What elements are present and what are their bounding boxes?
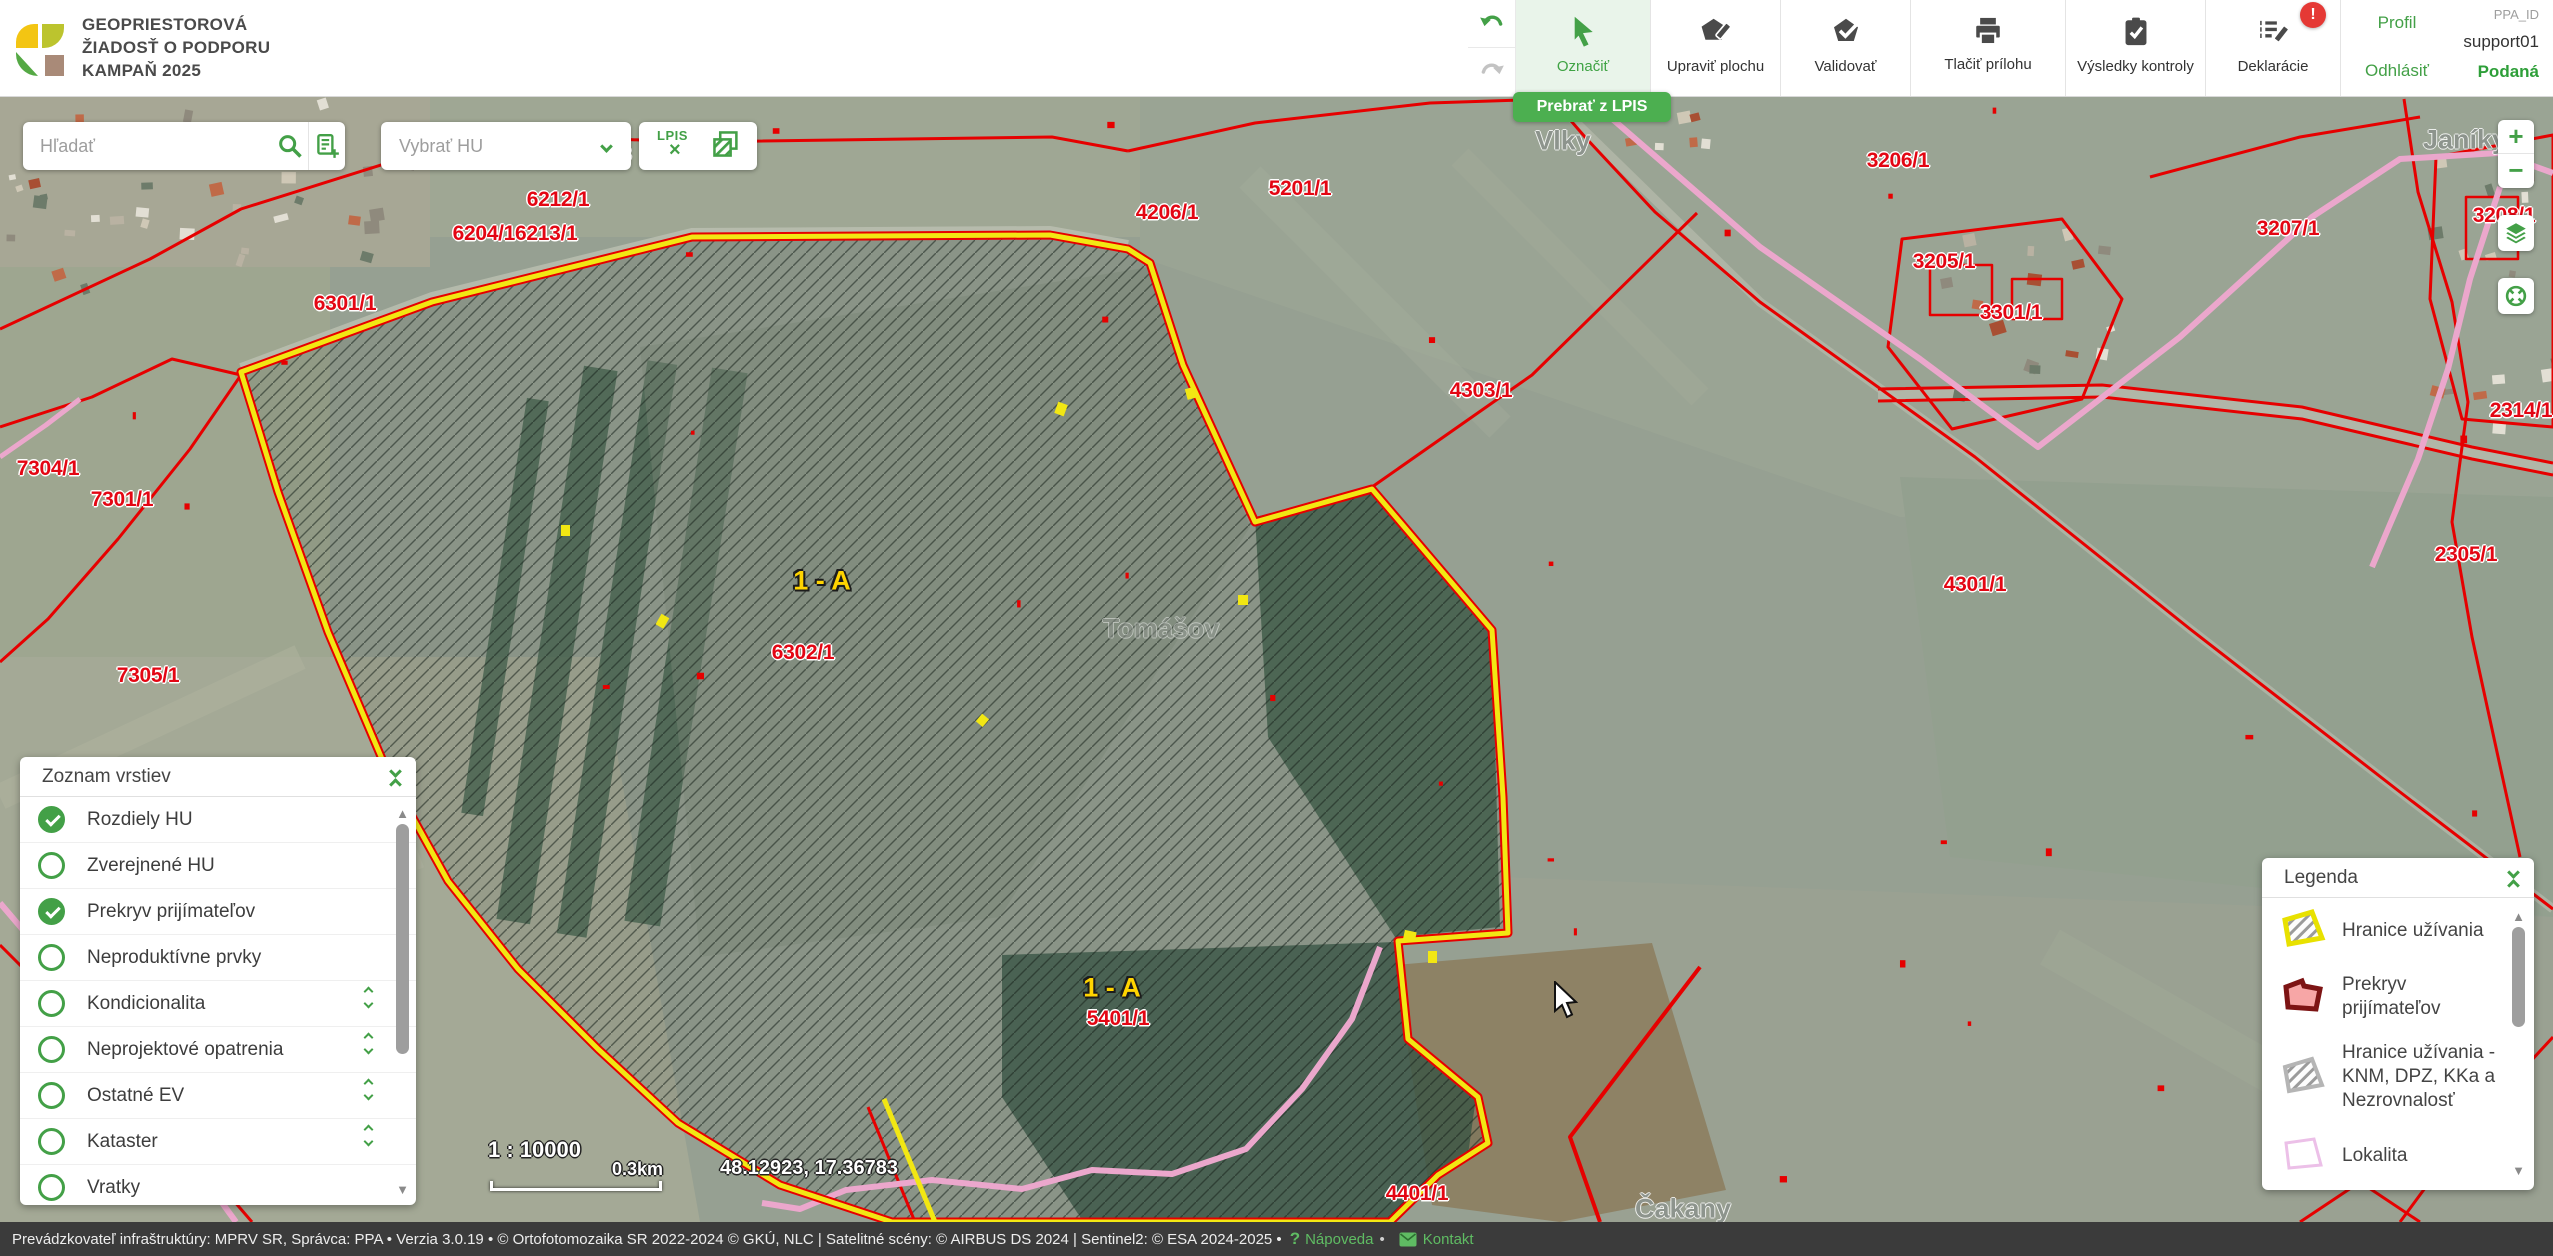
status-bar: Prevádzkovateľ infraštruktúry: MPRV SR, … [0, 1222, 2553, 1256]
infrastructure-text: Prevádzkovateľ infraštruktúry: MPRV SR, … [12, 1231, 1282, 1248]
layer-checked-icon[interactable] [38, 806, 65, 833]
legend-item: Hranice užívania [2262, 898, 2534, 963]
app-logo [16, 24, 64, 76]
declarations-list-icon [2255, 14, 2291, 50]
prebrat-z-lpis-tooltip: Prebrať z LPIS [1513, 92, 1671, 122]
edit-area-icon [1698, 14, 1734, 50]
legend-item: Lokalita [2262, 1123, 2534, 1188]
scale-ratio: 1 : 10000 [488, 1137, 581, 1163]
layer-item-label: Prekryv prijímateľov [87, 901, 255, 923]
legend-swatch-gray-hatch [2280, 1055, 2326, 1100]
legend-swatch-yellow-hatch [2280, 908, 2326, 953]
napoveda-link[interactable]: Nápoveda [1305, 1231, 1373, 1248]
scroll-up-arrow[interactable]: ▲ [395, 807, 410, 821]
layer-item-label: Ostatné EV [87, 1085, 184, 1107]
chevron-up-icon[interactable] [364, 1079, 374, 1089]
zoom-in-button[interactable]: + [2498, 120, 2534, 154]
layer-unchecked-icon[interactable] [38, 1174, 65, 1201]
layer-checked-icon[interactable] [38, 898, 65, 925]
toolbar-validovat-button[interactable]: Validovať [1780, 0, 1910, 96]
layers-panel: Zoznam vrstiev Rozdiely HUZverejnené HUP… [20, 757, 416, 1205]
toolbar-label: Validovať [1814, 58, 1876, 75]
chevron-up-icon [389, 778, 402, 791]
layer-item-label: Vratky [87, 1177, 140, 1199]
layer-item-rozdiely-hu[interactable]: Rozdiely HU [20, 797, 416, 843]
odhlasit-link[interactable]: Odhlásiť [2342, 61, 2452, 81]
x-icon: × [669, 139, 681, 162]
search-box [23, 122, 345, 170]
legend-swatch-pink-outline [2280, 1133, 2326, 1178]
layer-unchecked-icon[interactable] [38, 944, 65, 971]
chevron-up-icon[interactable] [364, 987, 374, 997]
toolbar-vysledky-kontroly-button[interactable]: Výsledky kontroly [2065, 0, 2205, 96]
layers-icon [2503, 220, 2529, 246]
status-badge: Podaná [2478, 62, 2539, 82]
lpis-remove-button[interactable]: LPIS × [655, 128, 695, 164]
layer-unchecked-icon[interactable] [38, 1082, 65, 1109]
collapse-panel-button[interactable] [391, 765, 400, 789]
legend-item: Prekryv prijímateľov [2262, 963, 2534, 1031]
add-to-list-button[interactable] [308, 122, 345, 170]
layers-button[interactable] [2498, 215, 2534, 251]
printer-icon [1971, 14, 2005, 48]
chevron-down-icon[interactable] [364, 1091, 374, 1101]
help-icon: ? [1290, 1229, 1300, 1249]
chevron-up-icon [2507, 879, 2520, 892]
layer-item-label: Zverejnené HU [87, 855, 215, 877]
chevron-up-icon[interactable] [364, 1125, 374, 1135]
scale-bar [490, 1181, 662, 1191]
layer-reorder-control[interactable] [365, 1080, 372, 1099]
legend-item-label: Hranice užívania - KNM, DPZ, KKa a Nezro… [2342, 1041, 2510, 1113]
chevron-down-icon[interactable] [364, 1045, 374, 1055]
zoom-out-button[interactable]: − [2498, 154, 2534, 188]
coordinates: 48.12923, 17.36783 [720, 1157, 898, 1180]
toolbar-label: Upraviť plochu [1667, 58, 1764, 75]
legend-panel-title: Legenda [2284, 867, 2358, 889]
form-plus-icon [313, 132, 341, 160]
layer-item-vratky[interactable]: Vratky [20, 1165, 416, 1205]
undo-icon [1478, 11, 1506, 37]
toolbar-label: Výsledky kontroly [2077, 58, 2194, 75]
toolbar-oznacit-button[interactable]: Označiť [1516, 0, 1650, 96]
layer-reorder-control[interactable] [365, 988, 372, 1007]
overlap-squares-icon [711, 129, 741, 159]
validate-icon [1828, 14, 1864, 50]
collapse-panel-button[interactable] [2509, 866, 2518, 890]
search-input[interactable] [23, 136, 272, 157]
app-title: GEOPRIESTOROVÁ ŽIADOSŤ O PODPORU KAMPAŇ … [82, 13, 270, 82]
layer-item-kondicionalita[interactable]: Kondicionalita [20, 981, 416, 1027]
target-icon [2503, 283, 2529, 309]
scroll-down-arrow[interactable]: ▼ [395, 1183, 410, 1197]
chevron-down-icon [389, 765, 402, 778]
toolbar-label: Deklarácie [2238, 58, 2309, 75]
select-hu-dropdown[interactable]: Vybrať HU [381, 122, 631, 170]
layer-reorder-control[interactable] [365, 1034, 372, 1053]
layer-item-ostatn-ev[interactable]: Ostatné EV [20, 1073, 416, 1119]
username: support01 [2463, 32, 2539, 52]
layer-item-neprojektov-opatrenia[interactable]: Neprojektové opatrenia [20, 1027, 416, 1073]
scrollbar-thumb[interactable] [396, 824, 409, 1054]
legend-scrollbar[interactable]: ▲ ▼ [2511, 910, 2526, 1178]
layer-unchecked-icon[interactable] [38, 1036, 65, 1063]
layer-item-label: Kondicionalita [87, 993, 205, 1015]
layer-item-kataster[interactable]: Kataster [20, 1119, 416, 1165]
overlap-layers-button[interactable] [711, 129, 741, 164]
map-area[interactable]: 6212/16204/16213/15203/35201/14206/16301… [0, 97, 2553, 1222]
layer-reorder-control[interactable] [365, 1126, 372, 1145]
select-hu-placeholder: Vybrať HU [381, 136, 602, 157]
legend-item: Hranice užívania - KNM, DPZ, KKa a Nezro… [2262, 1031, 2534, 1123]
redo-icon [1478, 59, 1506, 85]
layer-item-label: Neproduktívne prvky [87, 947, 261, 969]
layer-item-zverejnen-hu[interactable]: Zverejnené HU [20, 843, 416, 889]
layer-item-label: Rozdiely HU [87, 809, 193, 831]
chevron-down-icon[interactable] [364, 1137, 374, 1147]
toolbar-upravit-plochu-button[interactable]: Upraviť plochu [1650, 0, 1780, 96]
geolocate-button[interactable] [2498, 278, 2534, 314]
notification-badge: ! [2300, 2, 2326, 28]
legend-item-label: Hranice užívania [2342, 919, 2510, 943]
select-cursor-icon [1566, 14, 1600, 50]
layers-panel-title: Zoznam vrstiev [42, 766, 171, 788]
scale-distance: 0.3km [612, 1159, 663, 1180]
toolbar-label: Označiť [1557, 58, 1609, 75]
legend-panel: Legenda Hranice užívaniaPrekryv prijímat… [2262, 858, 2534, 1190]
layers-scrollbar[interactable]: ▲ ▼ [395, 807, 410, 1197]
chevron-down-icon [2507, 866, 2520, 879]
separator-dot: • [1379, 1231, 1384, 1248]
layer-item-neprodukt-vne-prvky[interactable]: Neproduktívne prvky [20, 935, 416, 981]
ppa-id-label: PPA_ID [2494, 7, 2539, 22]
layer-unchecked-icon[interactable] [38, 852, 65, 879]
toolbar-deklaracie-button[interactable]: Deklarácie ! [2205, 0, 2341, 96]
scroll-down-arrow[interactable]: ▼ [2511, 1164, 2526, 1178]
layer-unchecked-icon[interactable] [38, 990, 65, 1017]
legend-swatch-red-pink [2280, 975, 2326, 1020]
toolbar-tlacit-prilohu-button[interactable]: Tlačiť prílohu [1910, 0, 2065, 96]
app-header: GEOPRIESTOROVÁ ŽIADOSŤ O PODPORU KAMPAŇ … [0, 0, 2553, 97]
undo-button[interactable] [1468, 0, 1515, 48]
layer-item-label: Neprojektové opatrenia [87, 1039, 283, 1061]
layer-item-prekryv-prij-mate-ov[interactable]: Prekryv prijímateľov [20, 889, 416, 935]
search-icon [276, 132, 304, 160]
lpis-tools: LPIS × [639, 122, 757, 170]
scroll-up-arrow[interactable]: ▲ [2511, 910, 2526, 924]
layer-item-label: Kataster [87, 1131, 158, 1153]
redo-button[interactable] [1468, 48, 1515, 96]
chevron-down-icon [600, 140, 613, 153]
app: GEOPRIESTOROVÁ ŽIADOSŤ O PODPORU KAMPAŇ … [0, 0, 2553, 1256]
search-button[interactable] [272, 122, 308, 170]
clipboard-check-icon [2119, 14, 2153, 50]
chevron-up-icon[interactable] [364, 1033, 374, 1043]
layer-list: Rozdiely HUZverejnené HUPrekryv prijímat… [20, 797, 416, 1205]
legend-item-label: Prekryv prijímateľov [2342, 973, 2510, 1021]
envelope-icon [1399, 1232, 1417, 1247]
undo-redo-group [1468, 0, 1516, 96]
zoom-control: + − [2498, 120, 2534, 188]
profil-link[interactable]: Profil [2342, 13, 2452, 33]
toolbar-label: Tlačiť prílohu [1944, 56, 2031, 73]
legend-list: Hranice užívaniaPrekryv prijímateľovHran… [2262, 898, 2534, 1188]
chevron-down-icon[interactable] [364, 999, 374, 1009]
kontakt-link[interactable]: Kontakt [1423, 1231, 1474, 1248]
legend-item-label: Lokalita [2342, 1144, 2510, 1168]
layer-unchecked-icon[interactable] [38, 1128, 65, 1155]
scrollbar-thumb[interactable] [2512, 927, 2525, 1027]
